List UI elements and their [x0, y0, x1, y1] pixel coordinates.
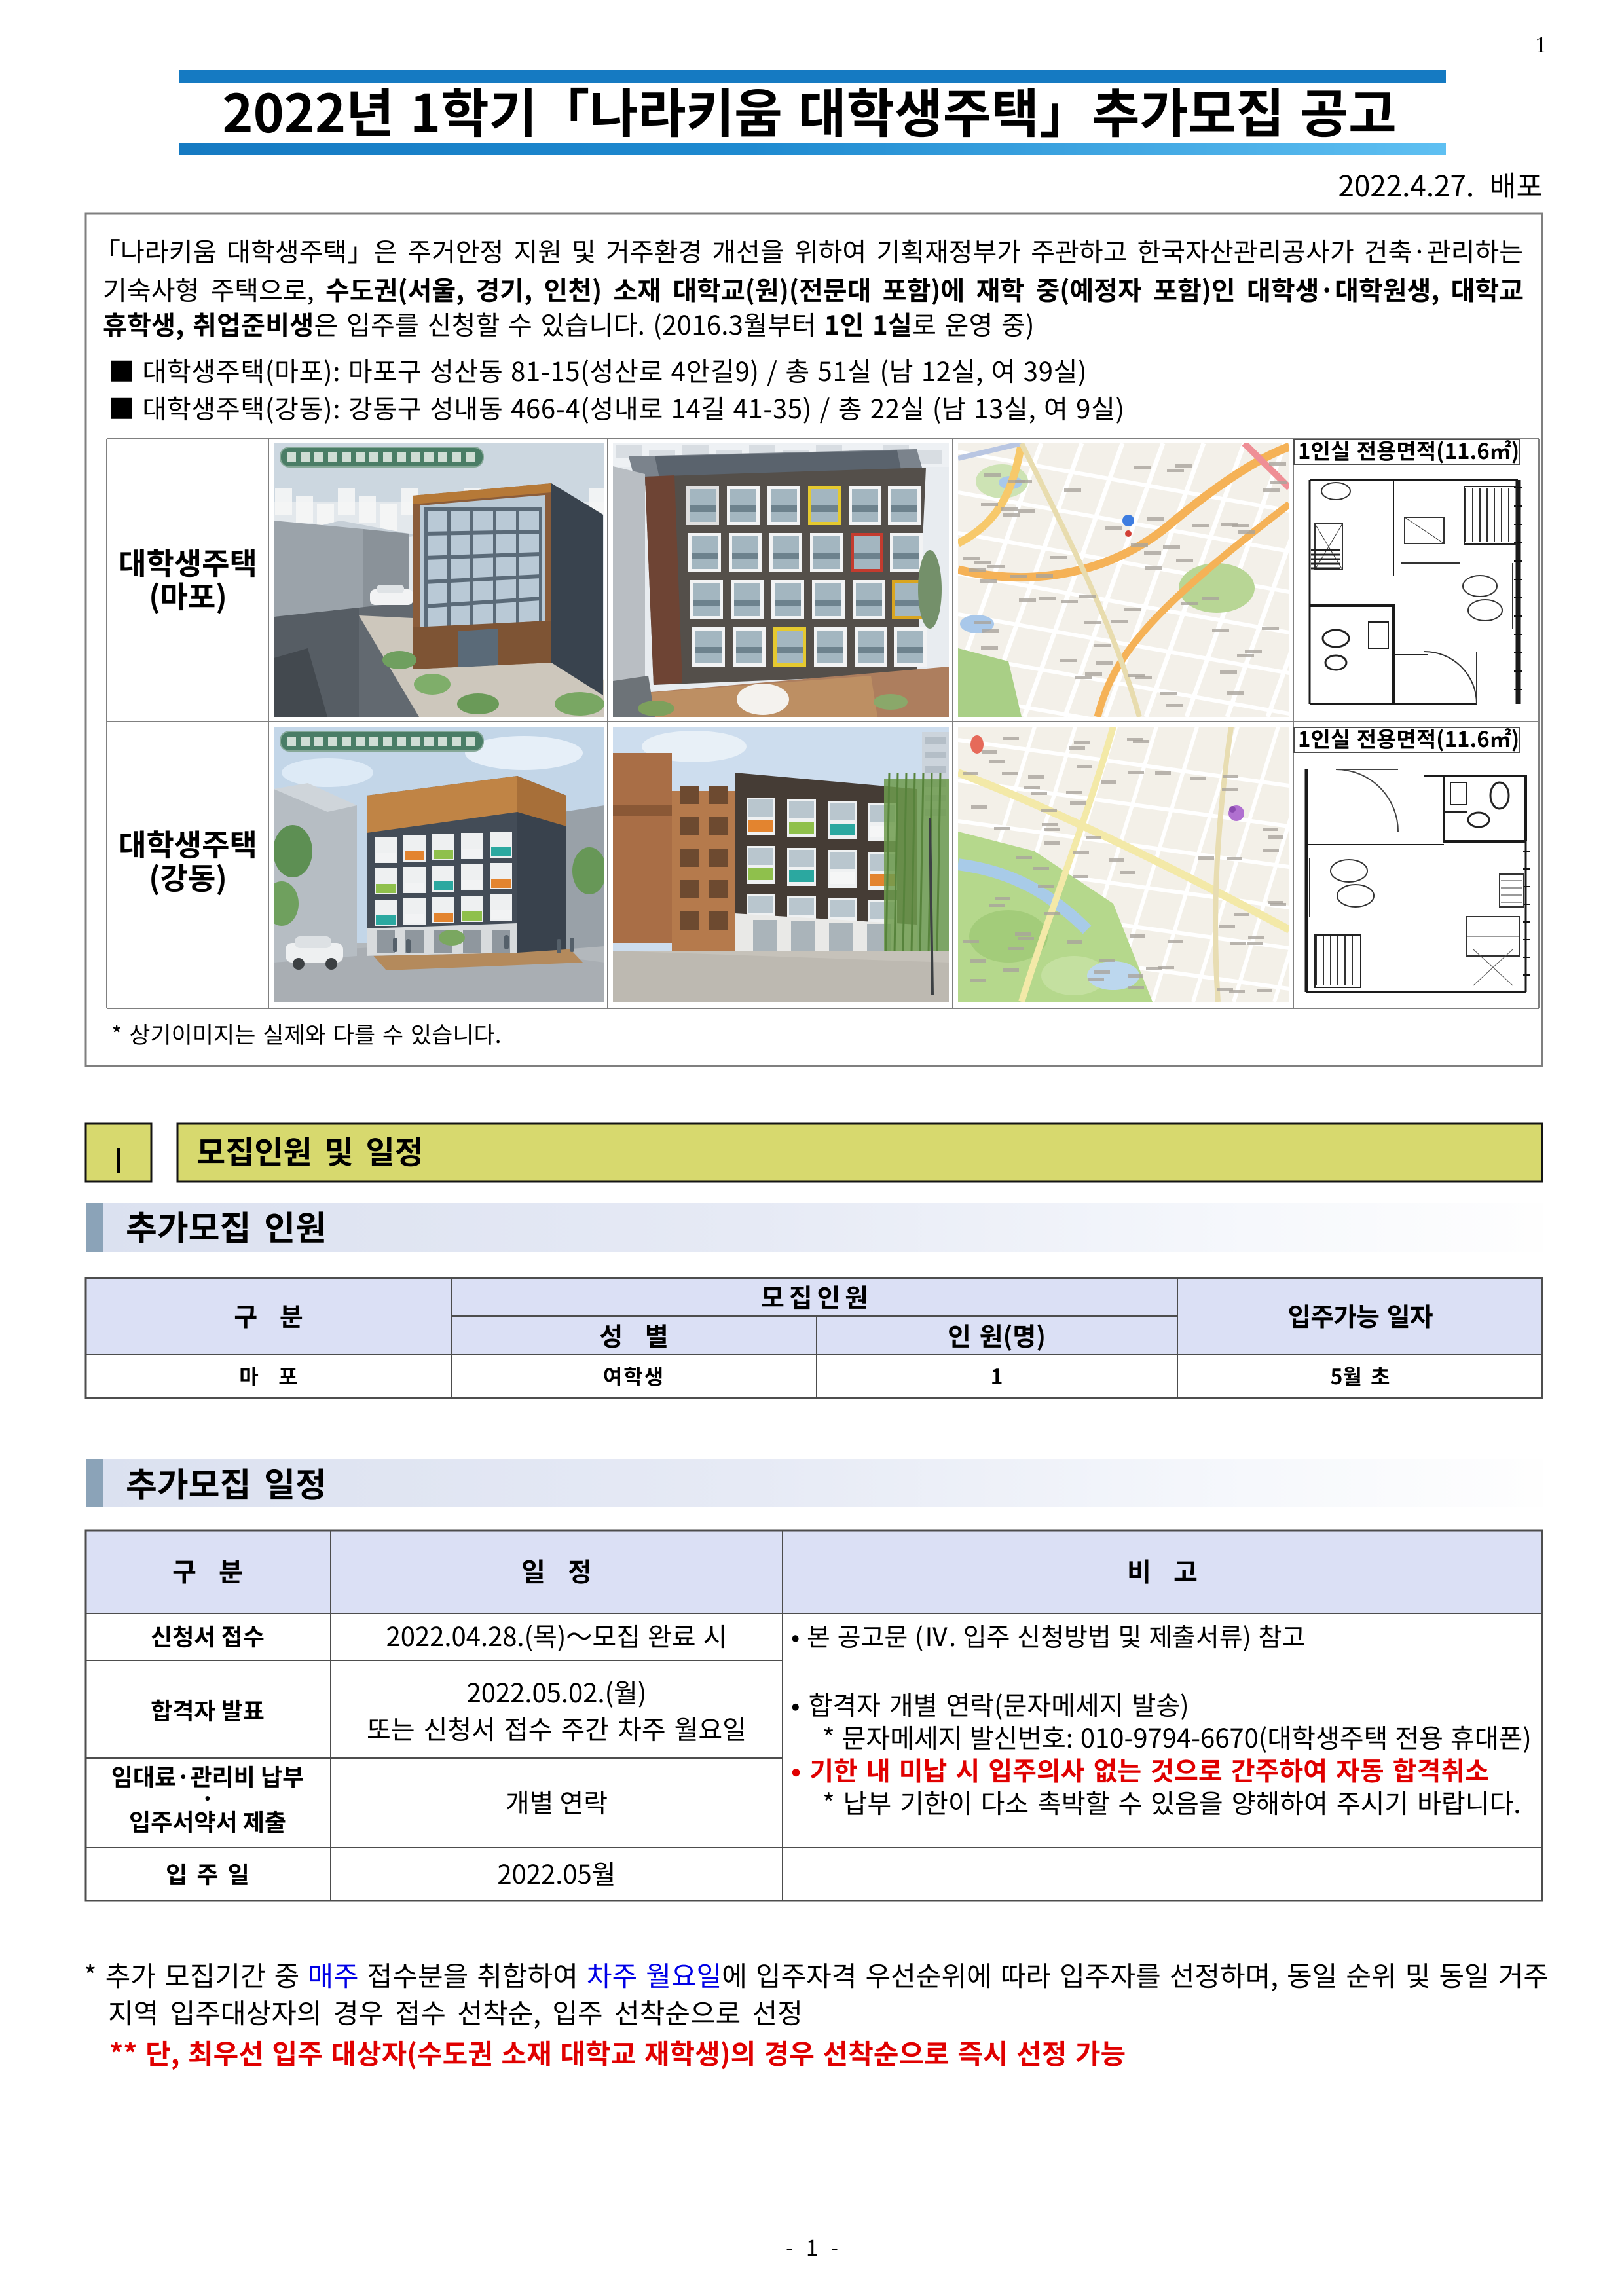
svg-text:1: 1 [1535, 31, 1547, 58]
